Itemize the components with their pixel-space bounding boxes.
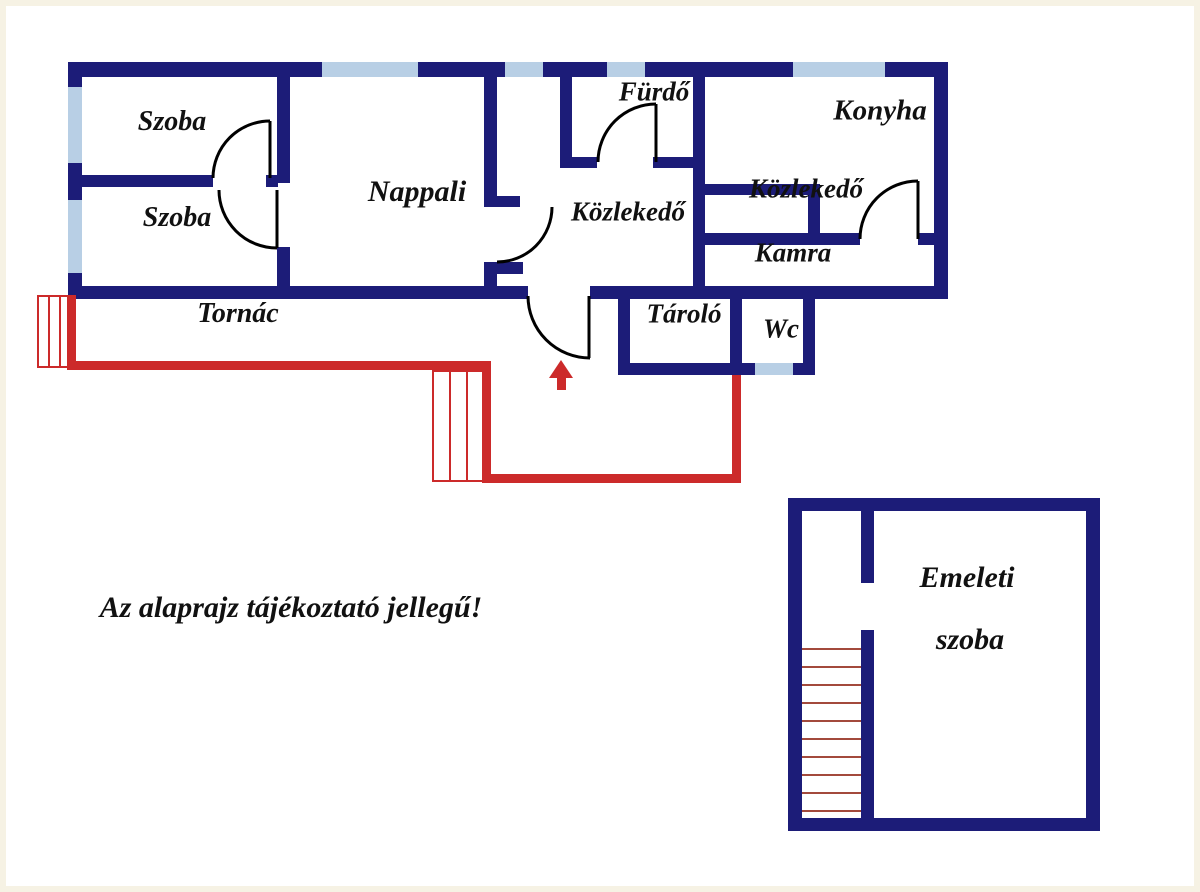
wall-szoba-nappali-lower bbox=[277, 247, 290, 291]
wall-main-divider bbox=[693, 62, 705, 299]
room-label-kozlekedo-right: Közlekedő bbox=[749, 176, 863, 203]
terrace-line-upper-horizontal bbox=[67, 361, 491, 370]
door-arc-konyha-kamra bbox=[860, 181, 918, 239]
terrace-line-lower-horizontal bbox=[482, 474, 741, 483]
window-top-3 bbox=[607, 62, 645, 77]
room-label-furdo: Fürdő bbox=[619, 79, 690, 106]
room-label-nappali: Nappali bbox=[368, 177, 466, 207]
wall-nappali-foot-upper bbox=[484, 196, 520, 207]
room-label-konyha: Konyha bbox=[833, 97, 926, 126]
door-arc-szoba2 bbox=[219, 190, 277, 248]
window-top-4 bbox=[793, 62, 885, 77]
wall-emeleti-top bbox=[788, 498, 1100, 511]
wall-furdo-left bbox=[560, 62, 572, 168]
door-arc-nappali bbox=[497, 207, 552, 262]
entrance-arrow-icon bbox=[549, 360, 573, 390]
room-label-tarolo: Tároló bbox=[646, 301, 721, 328]
wall-szoba-nappali-upper bbox=[277, 72, 290, 183]
room-label-wc: Wc bbox=[763, 316, 799, 343]
wall-nappali-foot-lower bbox=[484, 262, 523, 274]
door-arc-entrance bbox=[528, 296, 590, 358]
stairs-left-outdoor bbox=[37, 295, 70, 368]
wall-emeleti-left bbox=[788, 498, 802, 831]
wall-tarolo-bottom bbox=[618, 363, 742, 375]
room-label-kamra: Kamra bbox=[755, 240, 832, 267]
wall-furdo-bottom bbox=[653, 157, 695, 168]
window-left-upper bbox=[68, 87, 82, 163]
wall-emeleti-stub bbox=[861, 498, 874, 583]
wall-bottom-right bbox=[590, 286, 948, 299]
stairs-terrace bbox=[432, 370, 490, 482]
stairs-emeleti bbox=[802, 632, 861, 818]
disclaimer-note: Az alaprajz tájékoztató jellegű! bbox=[100, 593, 483, 623]
room-label-emeleti-line2: szoba bbox=[936, 625, 1004, 655]
wall-right bbox=[934, 62, 948, 298]
room-label-tornac: Tornác bbox=[197, 300, 278, 328]
floor-plan: Szoba Szoba Nappali Fürdő Konyha Közleke… bbox=[0, 0, 1200, 892]
room-label-emeleti-line1: Emeleti bbox=[920, 563, 1015, 593]
wall-emeleti-stair-side bbox=[861, 630, 874, 826]
room-label-szoba2: Szoba bbox=[143, 204, 211, 232]
terrace-line-right-vertical bbox=[732, 375, 741, 483]
window-top-2 bbox=[505, 62, 543, 77]
wall-kamra-top-stub bbox=[918, 233, 948, 245]
room-label-szoba1: Szoba bbox=[138, 108, 206, 136]
window-left-lower bbox=[68, 200, 82, 273]
wall-furdo-left-foot bbox=[560, 157, 597, 168]
wall-nappali-kozlekedo-upper bbox=[484, 72, 497, 202]
door-arc-szoba1 bbox=[213, 121, 270, 178]
door-arc-furdo bbox=[598, 104, 656, 162]
wall-emeleti-right bbox=[1086, 498, 1100, 831]
wall-bottom-left bbox=[68, 286, 528, 299]
wall-emeleti-bottom bbox=[788, 818, 1100, 831]
window-top-1 bbox=[322, 62, 418, 77]
window-wc bbox=[755, 363, 793, 375]
room-label-kozlekedo-center: Közlekedő bbox=[571, 199, 685, 226]
wall-szoba-divider bbox=[82, 175, 213, 187]
